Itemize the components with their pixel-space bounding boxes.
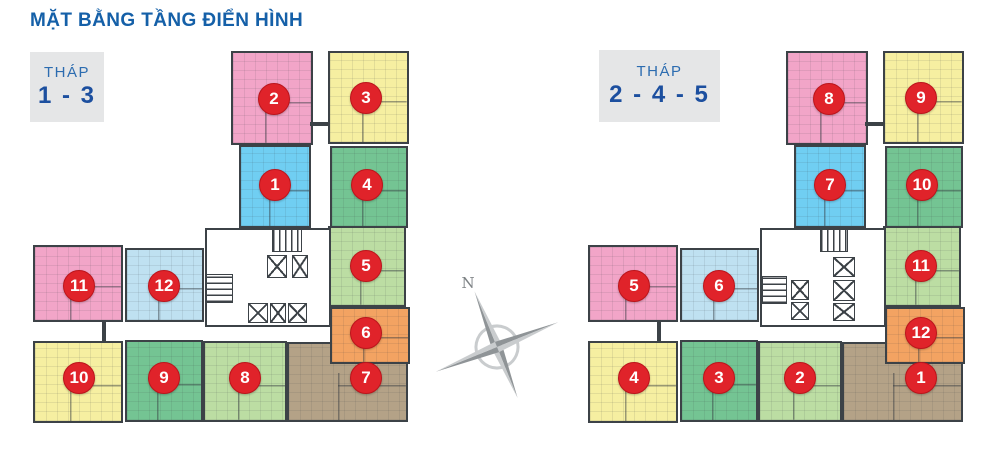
unit-badge: 11	[63, 270, 95, 302]
elevator-icon	[791, 302, 809, 320]
stair-icon	[206, 274, 233, 303]
elevator-icon	[292, 255, 308, 278]
unit-badge: 2	[784, 362, 816, 394]
unit-badge: 4	[351, 169, 383, 201]
unit-badge: 6	[703, 270, 735, 302]
corridor-connector	[657, 322, 661, 341]
corridor-connector	[310, 122, 328, 126]
unit-badge: 7	[350, 362, 382, 394]
unit-badge: 12	[905, 317, 937, 349]
elevator-icon	[288, 303, 307, 323]
unit-badge: 10	[63, 362, 95, 394]
unit-badge: 9	[905, 82, 937, 114]
stair-icon	[272, 229, 302, 252]
unit-badge: 8	[813, 83, 845, 115]
compass-icon: N	[435, 272, 565, 420]
compass-north-label: N	[461, 274, 474, 292]
unit-badge: 5	[618, 270, 650, 302]
elevator-icon	[833, 280, 855, 301]
stair-icon	[820, 229, 848, 252]
unit-badge: 4	[618, 362, 650, 394]
corridor-connector	[102, 322, 106, 341]
unit-badge: 8	[229, 362, 261, 394]
unit-badge: 9	[148, 362, 180, 394]
elevator-icon	[791, 280, 809, 300]
unit-badge: 3	[703, 362, 735, 394]
elevator-icon	[267, 255, 287, 278]
unit-badge: 10	[906, 169, 938, 201]
unit-badge: 2	[258, 83, 290, 115]
elevator-icon	[248, 303, 268, 323]
floor-plan-canvas: 231457611121098897101111256432N	[0, 0, 1000, 471]
unit-badge: 1	[259, 169, 291, 201]
unit-badge: 3	[350, 82, 382, 114]
elevator-icon	[270, 303, 286, 323]
stair-icon	[762, 276, 787, 304]
elevator-icon	[833, 303, 855, 321]
unit-badge: 1	[905, 362, 937, 394]
corridor-connector	[865, 122, 883, 126]
elevator-icon	[833, 257, 855, 277]
unit-badge: 5	[350, 250, 382, 282]
unit-badge: 11	[905, 250, 937, 282]
unit-badge: 6	[350, 317, 382, 349]
unit-badge: 12	[148, 270, 180, 302]
unit-badge: 7	[814, 169, 846, 201]
